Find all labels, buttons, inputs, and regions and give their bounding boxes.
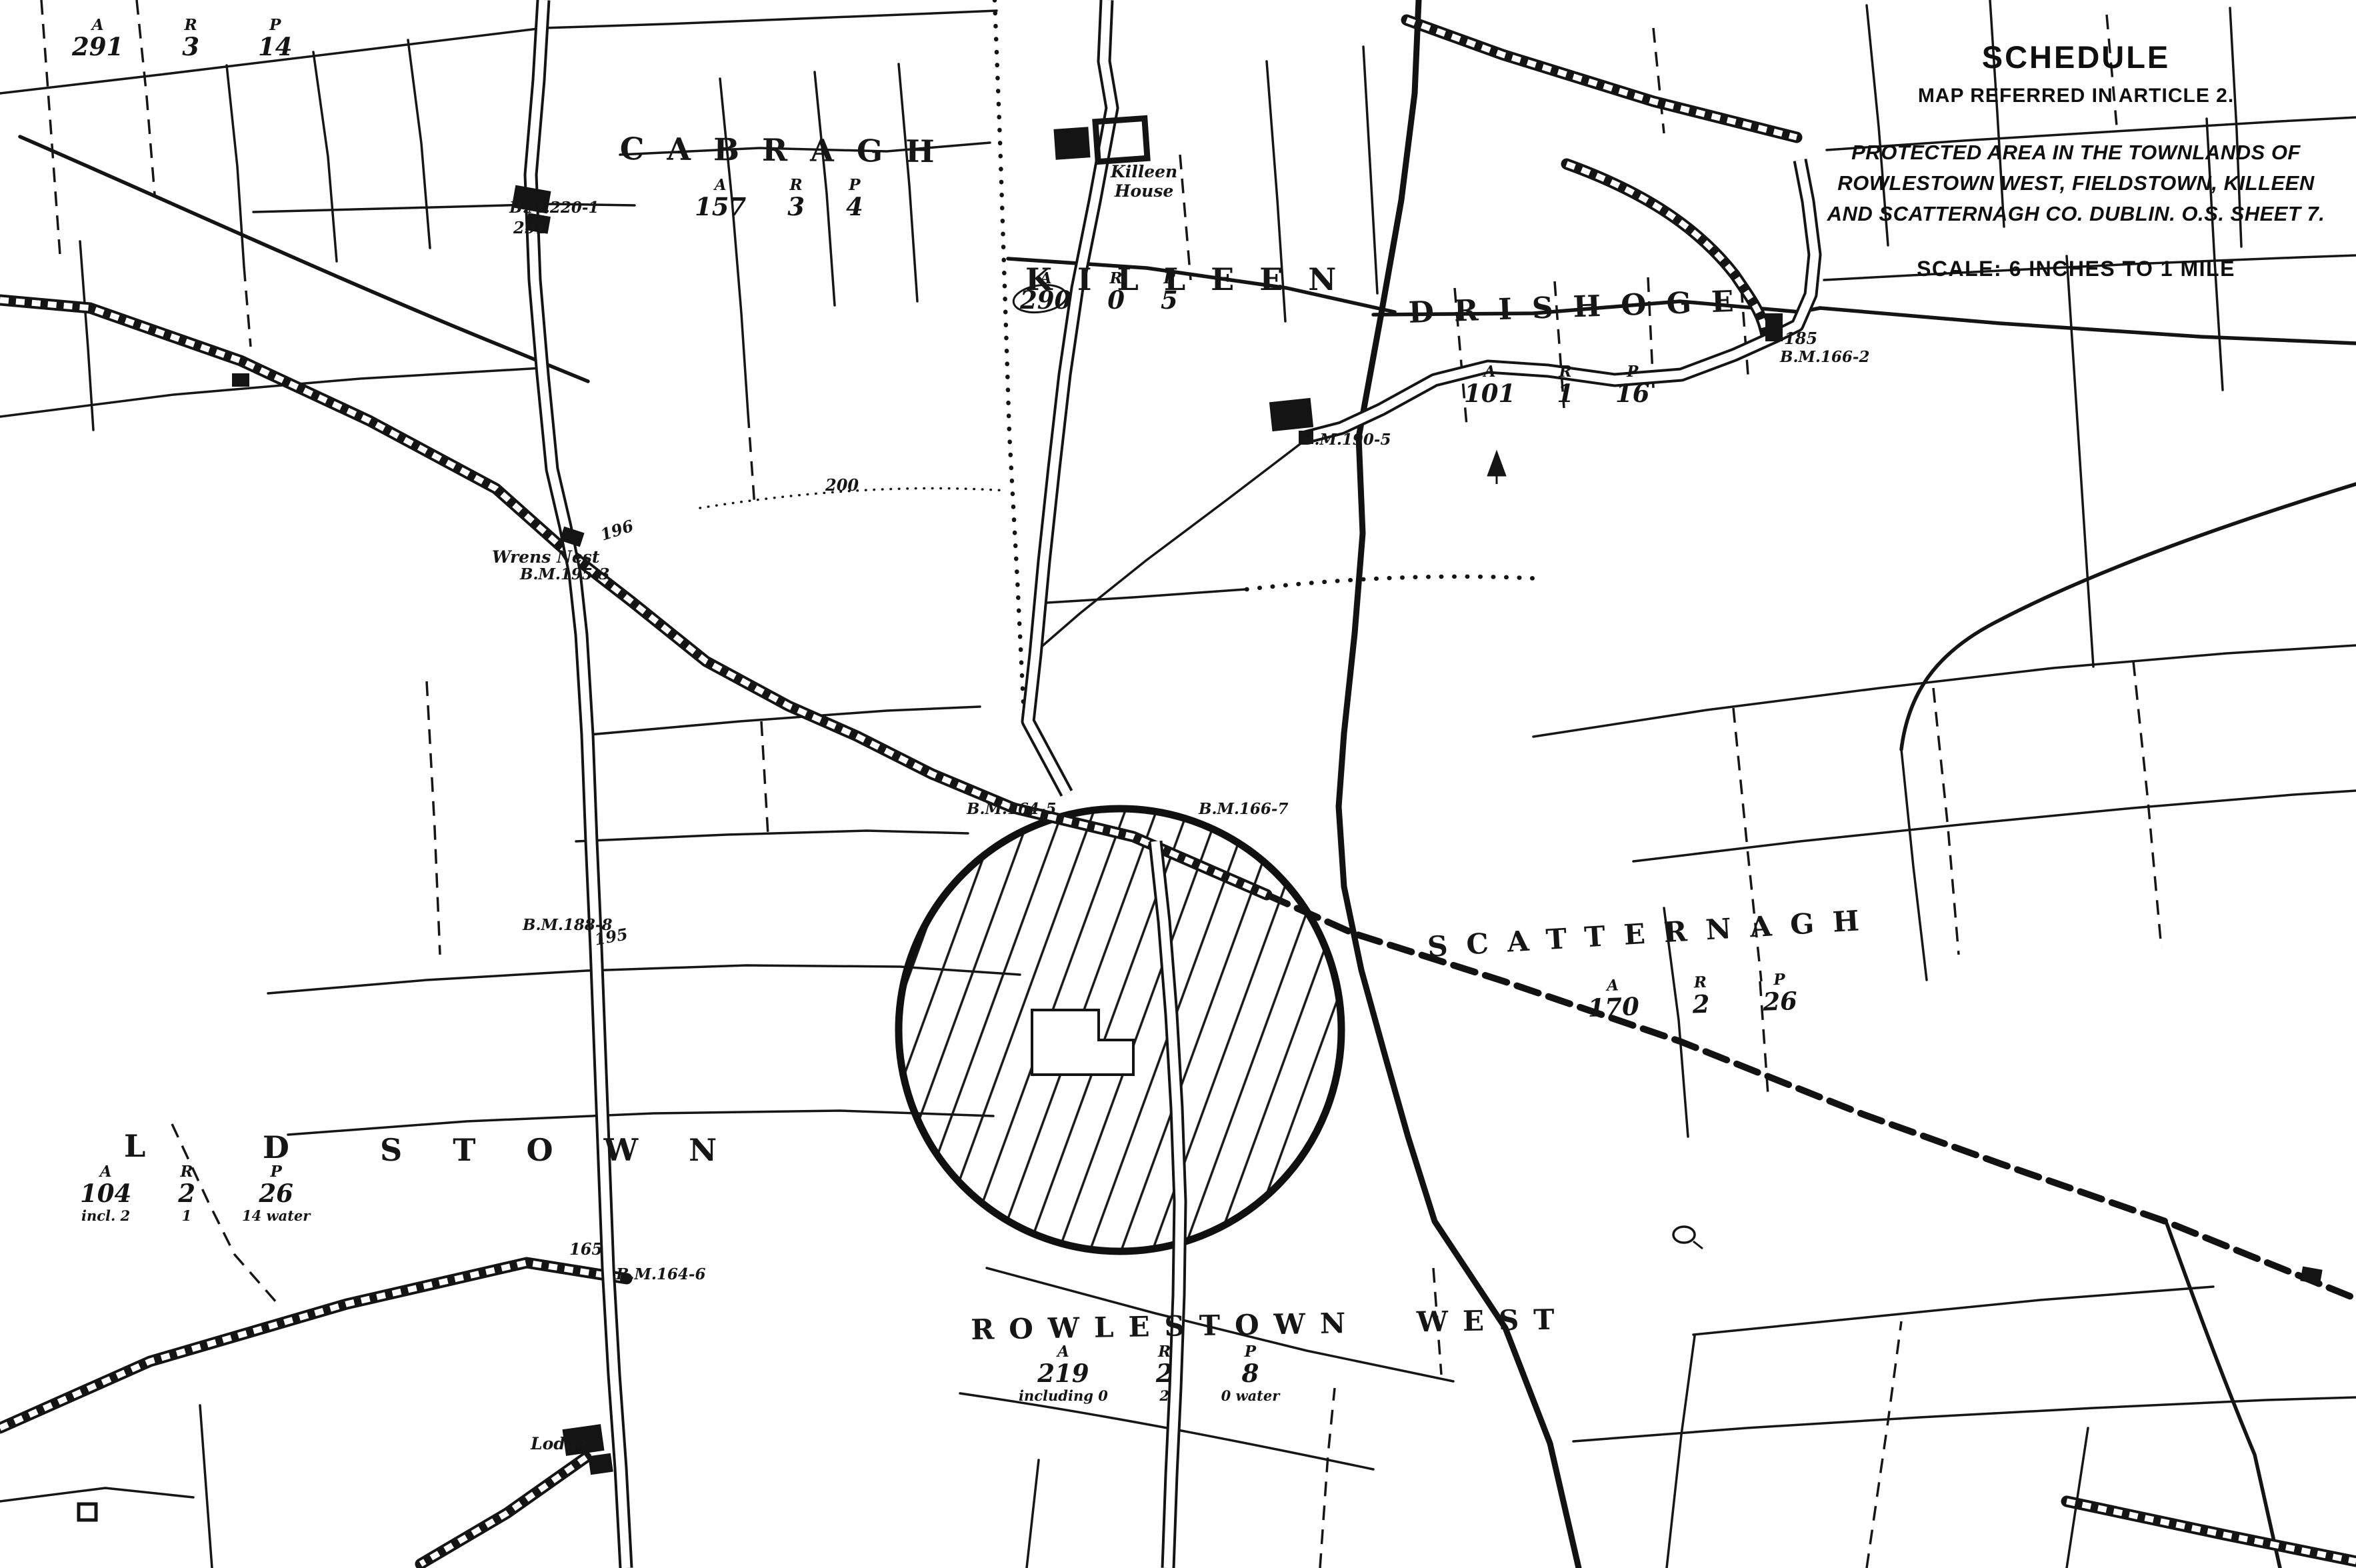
- house-label-line2: House: [1111, 182, 1177, 201]
- perches-value: 16: [1615, 381, 1650, 406]
- acres-value: 291: [72, 35, 123, 59]
- roods-value: 2: [1156, 1361, 1173, 1386]
- perches-value: 14: [258, 35, 293, 59]
- area-figures-cabragh: A157 R3 P4: [695, 177, 863, 219]
- roods-header: R: [1110, 271, 1123, 286]
- house-label-lodge: Lodge: [531, 1435, 587, 1454]
- acres-header: A: [1607, 977, 1619, 993]
- schedule-subtitle: MAP REFERRED IN ARTICLE 2.: [1795, 85, 2356, 107]
- perches-header: P: [1245, 1344, 1256, 1359]
- acres-header: A: [715, 177, 727, 193]
- perches-header: P: [1163, 271, 1175, 286]
- acres-header: A: [1057, 1344, 1069, 1359]
- house-label-killeen-house: Killeen House: [1111, 163, 1177, 201]
- benchmark-label: B.M.195-3: [520, 567, 609, 582]
- schedule-body-line3: AND SCATTERNAGH CO. DUBLIN. O.S. SHEET 7…: [1795, 202, 2356, 226]
- acres-value: 104: [80, 1181, 131, 1206]
- perches-header: P: [1773, 972, 1785, 988]
- os-map-sheet: CABRAGH KILLEEN DRISHOGE SCATTERNAGH ROW…: [0, 0, 2356, 1568]
- roods-note: 1: [182, 1209, 192, 1223]
- roods-value: 1: [1557, 381, 1574, 406]
- house-label-wrens-nest: Wrens Nest: [492, 548, 599, 567]
- spot-height: 165: [569, 1241, 603, 1257]
- townland-label-cabragh: CABRAGH: [620, 133, 957, 167]
- benchmark-label: B.M.166-7: [1199, 801, 1288, 817]
- benchmark-label: B.M.220-1: [509, 200, 599, 215]
- acres-note: including 0: [1019, 1389, 1108, 1403]
- acres-value: 157: [695, 195, 746, 219]
- spot-height: 291: [513, 220, 547, 236]
- pond-icon: [1673, 1227, 1703, 1249]
- benchmark-label: B.M.164-5: [967, 801, 1056, 817]
- perches-header: P: [269, 17, 281, 33]
- townland-label-fieldstown-d: D: [263, 1132, 289, 1163]
- roods-value: 2: [1692, 992, 1710, 1017]
- benchmark-label: B.M.166-2: [1780, 349, 1869, 365]
- acres-header: A: [100, 1164, 112, 1179]
- schedule-scale-note: SCALE: 6 INCHES TO 1 MILE: [1795, 257, 2356, 281]
- area-figures-fieldstown: A104incl. 2 R21 P2614 water: [80, 1164, 310, 1223]
- roods-header: R: [1693, 975, 1707, 991]
- spot-height: 185: [1784, 331, 1817, 347]
- acres-value: 170: [1587, 994, 1639, 1021]
- perches-value: 26: [259, 1181, 293, 1206]
- acres-note: incl. 2: [81, 1209, 130, 1223]
- roods-header: R: [1559, 364, 1572, 379]
- perches-note: 0 water: [1221, 1389, 1280, 1403]
- roods-note: 2: [1159, 1389, 1169, 1403]
- roods-value: 2: [178, 1181, 195, 1206]
- roods-header: R: [185, 17, 197, 33]
- schedule-body-line2: ROWLESTOWN WEST, FIELDSTOWN, KILLEEN: [1795, 171, 2356, 195]
- acres-header: A: [1040, 271, 1052, 286]
- perches-value: 5: [1161, 288, 1178, 313]
- perches-value: 26: [1763, 989, 1798, 1015]
- acres-value: 219: [1037, 1361, 1089, 1386]
- benchmark-label: B.M.164-6: [616, 1267, 705, 1282]
- roods-header: R: [181, 1164, 193, 1179]
- benchmark-label: B.M.190-5: [1301, 432, 1391, 447]
- house-label-line1: Killeen: [1111, 163, 1177, 182]
- perches-value: 8: [1242, 1361, 1259, 1386]
- townland-label-fieldstown-stown: STOWN: [380, 1135, 767, 1165]
- area-figures-corner-nw: A291 R3 P14: [72, 17, 292, 59]
- townland-label-fieldstown-l: L: [124, 1131, 145, 1161]
- roods-value: 3: [787, 195, 805, 219]
- acres-value: 290: [1020, 288, 1071, 313]
- perches-note: 14 water: [242, 1209, 310, 1223]
- roods-header: R: [790, 177, 803, 193]
- perches-value: 4: [846, 195, 863, 219]
- perches-header: P: [849, 177, 860, 193]
- acres-value: 101: [1464, 381, 1515, 406]
- area-figures-drishoge: A101 R1 P16: [1464, 364, 1649, 406]
- acres-header: A: [92, 17, 104, 33]
- protected-area-circle: [899, 809, 1341, 1251]
- area-figures-scatternagh: A170 R2 P26: [1587, 971, 1797, 1021]
- schedule-block: SCHEDULE MAP REFERRED IN ARTICLE 2. PROT…: [1795, 39, 2356, 281]
- roods-header: R: [1158, 1344, 1171, 1359]
- schedule-body-line1: PROTECTED AREA IN THE TOWNLANDS OF: [1795, 141, 2356, 165]
- schedule-title: SCHEDULE: [1795, 39, 2356, 75]
- perches-header: P: [271, 1164, 282, 1179]
- roods-value: 0: [1107, 288, 1125, 313]
- roods-value: 3: [182, 35, 199, 59]
- perches-header: P: [1627, 364, 1638, 379]
- area-figures-rowlestown-west: A219including 0 R22 P80 water: [1019, 1344, 1279, 1403]
- spot-height: 200: [825, 477, 859, 493]
- tree-icon: [1487, 451, 1506, 484]
- acres-header: A: [1484, 364, 1496, 379]
- area-figures-killeen: A290 R0 P5: [1020, 271, 1178, 313]
